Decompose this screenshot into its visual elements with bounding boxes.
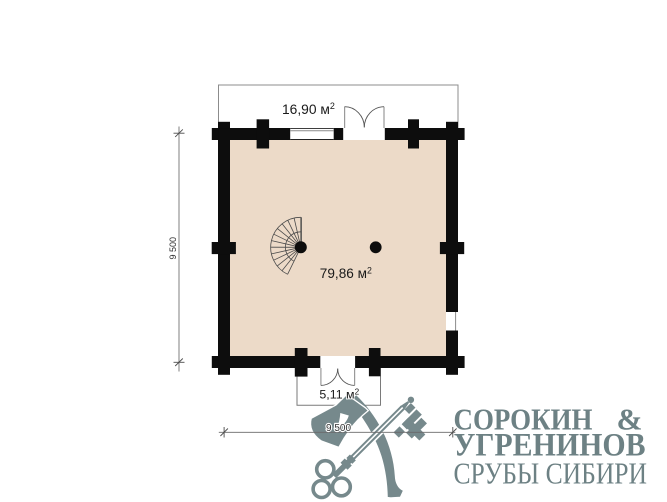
svg-text:СРУБЫ СИБИРИ: СРУБЫ СИБИРИ (454, 457, 648, 491)
svg-text:9 500: 9 500 (326, 423, 351, 434)
svg-text:79,86 м2: 79,86 м2 (320, 265, 372, 281)
svg-text:5,11 м2: 5,11 м2 (319, 388, 359, 402)
svg-text:9 500: 9 500 (168, 237, 178, 260)
svg-text:16,90 м2: 16,90 м2 (282, 101, 335, 117)
